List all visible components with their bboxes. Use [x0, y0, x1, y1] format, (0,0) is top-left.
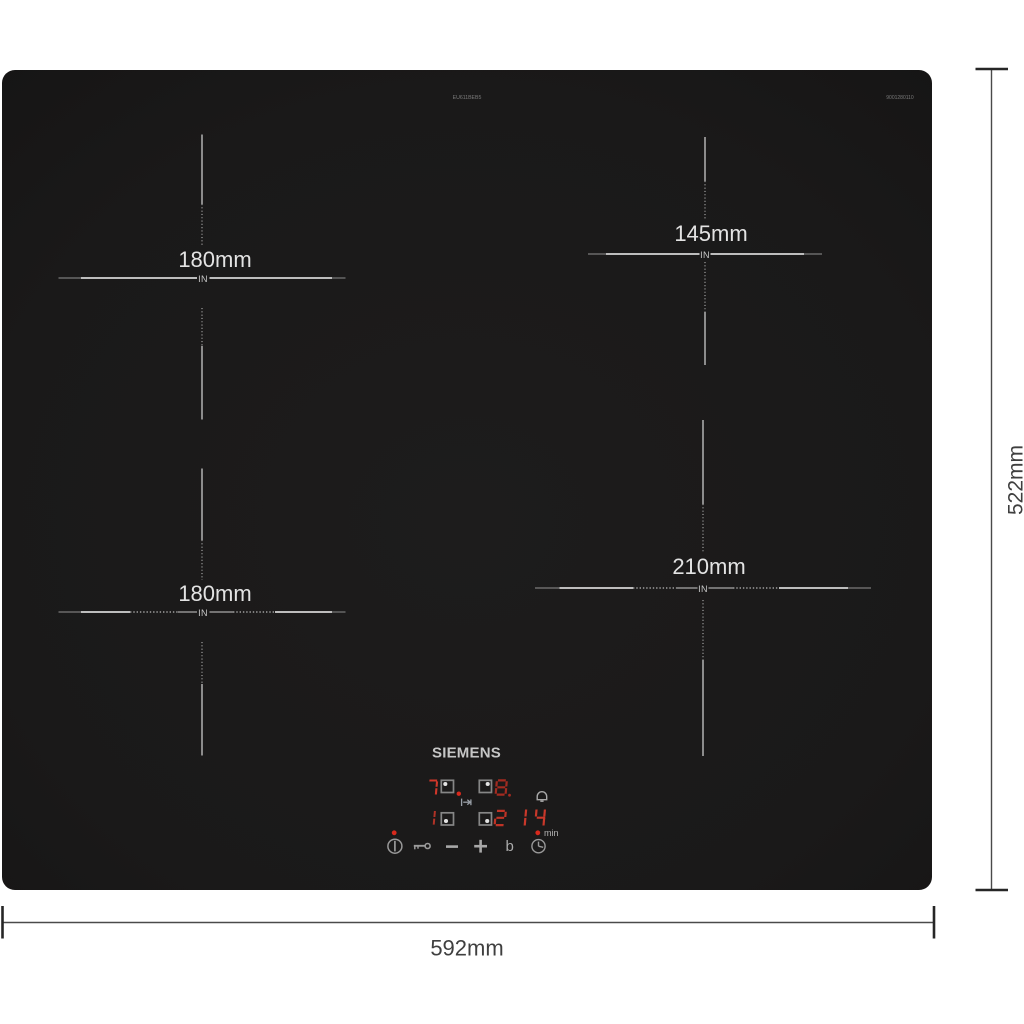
svg-text:145mm: 145mm [674, 221, 747, 246]
svg-text:IN: IN [198, 274, 208, 284]
svg-text:210mm: 210mm [672, 554, 745, 579]
svg-text:180mm: 180mm [178, 247, 251, 272]
svg-text:180mm: 180mm [178, 581, 251, 606]
svg-text:9001280110: 9001280110 [886, 95, 914, 101]
svg-text:SIEMENS: SIEMENS [432, 744, 501, 761]
svg-text:b: b [506, 838, 514, 855]
svg-text:min: min [544, 828, 559, 838]
svg-text:IN: IN [700, 250, 710, 260]
svg-text:522mm: 522mm [1005, 445, 1024, 515]
svg-text:IN: IN [198, 608, 208, 618]
svg-text:EU611BEB5: EU611BEB5 [453, 95, 482, 101]
svg-text:IN: IN [698, 584, 708, 594]
svg-text:592mm: 592mm [430, 936, 503, 961]
